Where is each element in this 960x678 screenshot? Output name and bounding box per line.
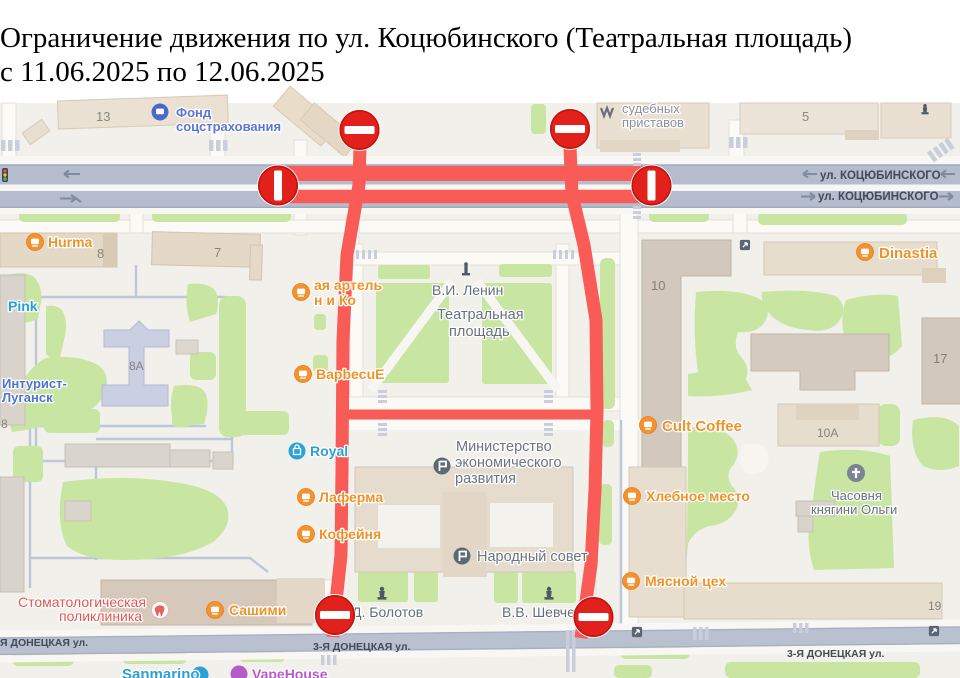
- svg-text:17: 17: [933, 351, 947, 366]
- svg-text:Народный совет: Народный совет: [477, 549, 588, 565]
- svg-text:Royаl: Royаl: [310, 443, 348, 459]
- svg-text:княгини Ольги: княгини Ольги: [811, 502, 897, 517]
- svg-text:3-Я ДОНЕЦКАЯ ул.: 3-Я ДОНЕЦКАЯ ул.: [787, 648, 885, 660]
- svg-text:Hurma: Hurma: [48, 234, 93, 250]
- svg-text:экономического: экономического: [455, 455, 562, 471]
- svg-text:Cult Coffee: Cult Coffee: [662, 418, 742, 435]
- svg-text:10: 10: [651, 278, 665, 293]
- svg-text:Dinastia: Dinastia: [879, 245, 938, 262]
- svg-text:Лаферма: Лаферма: [319, 489, 383, 505]
- svg-text:Луганск: Луганск: [2, 390, 53, 405]
- svg-text:судебных: судебных: [622, 101, 680, 116]
- svg-text:площадь: площадь: [449, 324, 510, 340]
- svg-text:BaрbecuE: BaрbecuE: [316, 366, 384, 382]
- svg-text:Фонд: Фонд: [176, 105, 212, 120]
- svg-text:Часовня: Часовня: [831, 488, 882, 503]
- svg-text:В.И. Ленин: В.И. Ленин: [432, 282, 503, 298]
- svg-text:Я ДОНЕЦКАЯ ул.: Я ДОНЕЦКАЯ ул.: [0, 637, 88, 649]
- svg-text:ая артель: ая артель: [314, 277, 383, 293]
- svg-text:приставов: приставов: [622, 115, 684, 130]
- svg-text:ул. КОЦЮБИНСКОГО: ул. КОЦЮБИНСКОГО: [818, 191, 939, 203]
- svg-text:Sanmarino: Sanmarino: [122, 666, 200, 678]
- svg-text:Кофейня: Кофейня: [319, 526, 381, 542]
- svg-text:Мясной цех: Мясной цех: [645, 573, 726, 589]
- svg-text:соцстрахования: соцстрахования: [176, 119, 281, 134]
- svg-text:5: 5: [802, 109, 809, 124]
- svg-text:поликлиника: поликлиника: [59, 608, 142, 624]
- svg-text:Д. Болотов: Д. Болотов: [352, 604, 423, 620]
- svg-text:8А: 8А: [129, 359, 144, 373]
- svg-text:3-Я ДОНЕЦКАЯ ул.: 3-Я ДОНЕЦКАЯ ул.: [313, 641, 411, 653]
- svg-text:19: 19: [928, 599, 942, 613]
- svg-text:ул. КОЦЮБИНСКОГО: ул. КОЦЮБИНСКОГО: [820, 170, 941, 182]
- svg-text:Министерство: Министерство: [456, 439, 552, 455]
- svg-text:Pink: Pink: [8, 298, 38, 314]
- svg-text:VapeHouse: VapeHouse: [252, 666, 328, 678]
- svg-text:8: 8: [1, 417, 8, 431]
- svg-text:10А: 10А: [817, 426, 838, 440]
- svg-text:8: 8: [97, 246, 104, 261]
- svg-text:7: 7: [214, 245, 221, 260]
- svg-text:В.В. Шевчен: В.В. Шевчен: [502, 604, 583, 620]
- svg-text:н и Ко: н и Ко: [314, 292, 356, 308]
- svg-text:13: 13: [96, 109, 110, 124]
- svg-text:развития: развития: [455, 471, 516, 487]
- svg-text:Интурист-: Интурист-: [2, 376, 67, 391]
- svg-text:Хлебное место: Хлебное место: [646, 488, 750, 504]
- svg-text:Театральная: Театральная: [437, 307, 524, 323]
- svg-text:Сашими: Сашими: [229, 602, 286, 618]
